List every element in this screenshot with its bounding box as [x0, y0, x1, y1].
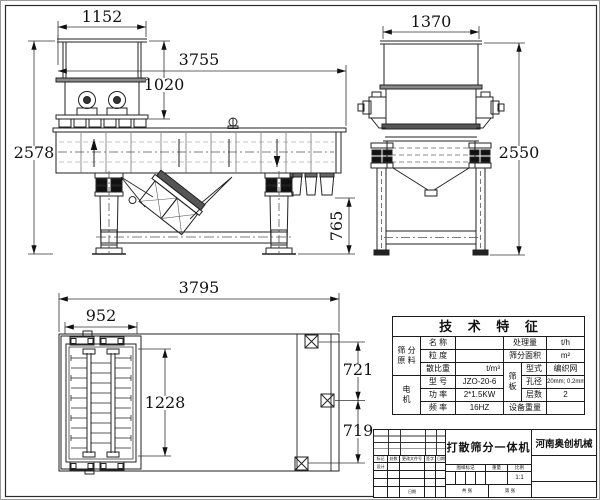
dim-end-total-height: 2550 [499, 143, 540, 162]
dim-outlet-pitch-rear: 719 [343, 421, 374, 440]
dim-hopper-height: 1020 [144, 75, 185, 94]
rev-sign-label: 签字 [425, 456, 436, 462]
sheet-number: 第 张 [489, 485, 531, 497]
design-label: 设计 [374, 463, 388, 470]
spec-area-label: 筛分面积 [504, 350, 547, 363]
spec-power-label: 功 率 [421, 389, 456, 402]
end-motor-left [358, 92, 386, 128]
spec-material-group: 筛 分 原 料 [393, 337, 421, 376]
end-v-hopper [393, 168, 469, 196]
empty-cell [425, 463, 436, 470]
spec-weight-label: 设备重量 [504, 402, 547, 415]
end-spring-mount-right [469, 143, 491, 168]
spec-weight-value [547, 402, 585, 415]
spec-screen-group: 筛 板 [504, 363, 522, 402]
hopper-vibration-motor-right [107, 92, 127, 116]
spec-aperture-label: 孔径 [522, 376, 547, 389]
empty-cell [446, 472, 456, 484]
revision-zone: 标记 处数 更改文件号 签字 日期 设计 日期 [374, 430, 446, 497]
spec-table-title: 技 术 特 征 [393, 317, 585, 337]
sheet-row: 共 张 第 张 [446, 485, 531, 497]
vibration-exciter [121, 166, 232, 241]
spec-model-value: JZO-20-6 [456, 376, 504, 389]
scale-label: 比例 [508, 465, 531, 471]
support-leg-right [262, 171, 296, 254]
empty-cell [436, 479, 446, 486]
empty-cell [436, 487, 446, 497]
end-screen-unit [371, 137, 491, 196]
rev-count-label: 处数 [388, 456, 400, 462]
dim-end-top-width: 1370 [411, 12, 452, 31]
empty-cell [400, 479, 425, 486]
dim-total-length: 3755 [179, 50, 220, 69]
dim-plan-total-length: 3795 [179, 278, 220, 297]
rev-mark-label: 标记 [374, 456, 388, 462]
spec-motor-group: 电 机 [393, 376, 421, 415]
drawing-number-cell [532, 456, 596, 482]
dim-breaker-width: 952 [86, 306, 117, 325]
rev-docno-label: 更改文件号 [400, 456, 425, 462]
feed-hopper [56, 39, 148, 127]
dim-breaker-length: 1228 [145, 393, 186, 412]
plan-view: 3795 952 1228 721 719 [59, 278, 374, 474]
date-row: 日期 [374, 487, 445, 497]
dim-discharge-height: 765 [327, 211, 346, 242]
spec-frequency-label: 频 率 [421, 402, 456, 415]
end-hopper [358, 41, 504, 129]
empty-cell [388, 471, 400, 478]
spec-aperture-value: 20mm; 0.2mm [547, 376, 585, 389]
blank-row [374, 471, 445, 479]
spec-granularity-label: 粒 度 [421, 350, 456, 363]
lifting-eye [228, 118, 238, 129]
engineering-drawing-sheet: 1152 3755 1020 2578 765 [0, 0, 600, 500]
empty-cell [400, 471, 425, 478]
empty-cell [388, 479, 400, 486]
spec-layers-label: 层数 [522, 389, 547, 402]
scale-value: 1:1 [508, 472, 531, 484]
spec-power-value: 2*1.5KW [456, 389, 504, 402]
blank-row [374, 479, 445, 487]
date-label: 日期 [400, 487, 425, 497]
screen-body [53, 118, 346, 173]
discharge-chutes [290, 173, 334, 195]
breaker-section [61, 331, 141, 474]
spec-name-label: 名 称 [421, 337, 456, 350]
empty-cell [425, 479, 436, 486]
company-name: 河南奥创机械 [532, 430, 596, 456]
spec-density-unit: t/m³ [456, 363, 504, 376]
spec-density-label: 散比重 [421, 363, 456, 376]
drawing-canvas: 1152 3755 1020 2578 765 [1, 1, 600, 500]
support-leg-left [92, 171, 126, 254]
empty-cell [400, 463, 425, 470]
spec-type-value: 编织网 [547, 363, 585, 376]
empty-cell [466, 472, 476, 484]
empty-cell [456, 472, 466, 484]
spec-model-label: 型 号 [421, 376, 456, 389]
spec-area-unit: m² [547, 350, 585, 363]
end-spring-mount-left [371, 143, 393, 168]
outlet-ports [295, 335, 334, 470]
empty-cell [436, 471, 446, 478]
empty-cell [374, 471, 388, 478]
weight-value [486, 472, 508, 484]
weight-label: 重量 [486, 465, 508, 471]
bottom-cell [532, 482, 596, 497]
dim-total-height: 2578 [14, 143, 55, 162]
side-view: 1152 3755 1020 2578 765 [14, 7, 355, 254]
hopper-vibration-motor-left [77, 92, 97, 116]
spec-table: 技 术 特 征 筛 分 原 料 名 称 处理量 t/h 粒 度 筛分面积 m² … [392, 316, 585, 415]
mark-sub-row: 1:1 [446, 472, 531, 485]
company-zone: 河南奥创机械 [532, 430, 596, 497]
spec-layers-value: 2 [547, 389, 585, 402]
empty-cell [436, 463, 446, 470]
end-motor-right [476, 92, 504, 128]
dim-top-width: 1152 [82, 7, 123, 26]
end-view: 1370 2550 [358, 12, 539, 255]
rev-date-label: 日期 [436, 456, 446, 462]
end-legs [374, 168, 488, 255]
spec-capacity-unit: t/h [547, 337, 585, 350]
dim-outlet-pitch-front: 721 [343, 360, 374, 379]
empty-cell [425, 487, 436, 497]
revision-header-row: 标记 处数 更改文件号 签字 日期 [374, 456, 445, 463]
spec-granularity-value [456, 350, 504, 363]
title-block: 标记 处数 更改文件号 签字 日期 设计 日期 打散筛分一体机 [373, 429, 597, 498]
empty-cell [425, 471, 436, 478]
empty-cell [374, 487, 388, 497]
title-zone: 打散筛分一体机 图样标记 重量 比例 1:1 共 张 第 张 [446, 430, 532, 497]
empty-cell [476, 472, 486, 484]
revision-rows [374, 430, 445, 456]
cross-beam [96, 230, 291, 245]
empty-cell [388, 487, 400, 497]
design-row: 设计 [374, 463, 445, 471]
spec-name-value [456, 337, 504, 350]
spec-type-label: 型式 [522, 363, 547, 376]
mark-weight-scale-row: 图样标记 重量 比例 [446, 465, 531, 472]
drawing-title: 打散筛分一体机 [446, 430, 531, 465]
empty-cell [374, 479, 388, 486]
spec-capacity-label: 处理量 [504, 337, 547, 350]
empty-cell [388, 463, 400, 470]
spec-frequency-value: 16HZ [456, 402, 504, 415]
mark-label: 图样标记 [446, 465, 486, 471]
sheet-total: 共 张 [446, 485, 489, 497]
